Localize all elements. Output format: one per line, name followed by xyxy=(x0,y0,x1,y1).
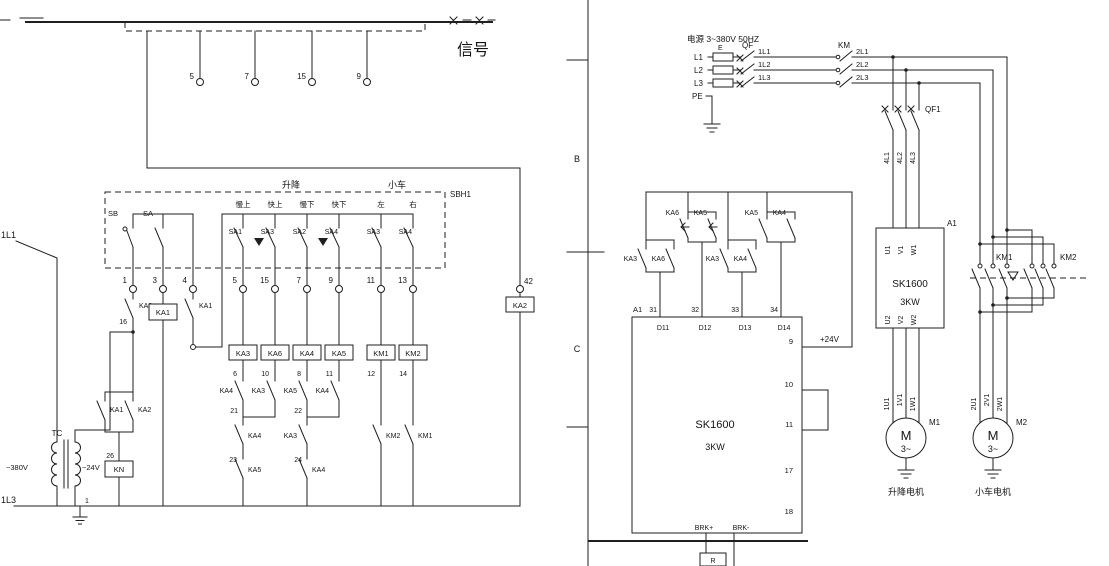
inverter-terminal: U2 xyxy=(885,315,892,324)
contact-pivot xyxy=(1030,264,1034,268)
qf1-label: QF1 xyxy=(925,105,941,114)
motor1-ground xyxy=(898,458,914,478)
terminal-number: 11 xyxy=(785,420,793,429)
motor-letter: M xyxy=(901,428,912,443)
controller-box-section: A1 31 32 33 34 D11 D12 D13 D14 9 10 11 1… xyxy=(632,305,840,566)
brake-resistor-label: R xyxy=(710,558,715,565)
terminal-circle xyxy=(130,286,137,293)
terminal-number: 13 xyxy=(398,276,407,285)
tc-label: TC xyxy=(52,429,63,438)
control-supply-section: 1L1 1L3 TC ~380V ~24V 1 KA2 16 KA1 KA1 K… xyxy=(1,214,534,524)
pe-ground xyxy=(704,96,720,132)
wire-label: 2W1 xyxy=(997,397,1004,412)
column-label: 右 xyxy=(409,199,417,209)
terminal-circle xyxy=(410,286,417,293)
input-terminal: D14 xyxy=(778,325,791,332)
wire-number: 8 xyxy=(297,371,301,378)
wire-number: 16 xyxy=(119,319,127,326)
v24-label: +24V xyxy=(820,335,840,344)
controller-power: 3KW xyxy=(705,442,725,452)
terminal-number: 18 xyxy=(785,507,793,516)
junction-dot xyxy=(891,55,895,59)
junction-dot xyxy=(917,81,921,85)
terminal-number: 9 xyxy=(329,276,334,285)
terminal-number: 42 xyxy=(524,277,533,286)
coil-name: KA6 xyxy=(268,349,282,358)
contact-pivot xyxy=(1052,264,1056,268)
coil-name: KA3 xyxy=(236,349,250,358)
junction-circle xyxy=(191,345,196,350)
km2-top-crossover xyxy=(980,230,1054,264)
secondary-leads xyxy=(75,332,133,506)
column-label: 快上 xyxy=(268,199,283,209)
contact-label: KA4 xyxy=(248,433,261,440)
coil-name: KA2 xyxy=(513,301,527,310)
contact-label: KA4 xyxy=(220,388,233,395)
terminal-number: 9 xyxy=(357,72,362,81)
terminal-circle xyxy=(190,286,197,293)
tc-secondary-winding xyxy=(75,442,81,486)
terminal-number: 7 xyxy=(297,276,302,285)
wire-label: 1W1 xyxy=(910,397,917,412)
km-label: KM xyxy=(838,41,850,50)
sb-actuator xyxy=(123,227,127,231)
motor-phase: 3~ xyxy=(988,444,998,454)
mains-wires xyxy=(708,57,1007,264)
terminal-number: 3 xyxy=(153,276,158,285)
ka1-seal-wire xyxy=(185,214,222,347)
tc-core xyxy=(64,440,68,488)
terminal-number: 4 xyxy=(183,276,188,285)
terminal-number: 7 xyxy=(245,72,250,81)
contact-label: KA2 xyxy=(138,407,151,414)
power-input-section: 电源 3~380V 50HZ L1 L2 L3 PE E QF 1L1 1L2 … xyxy=(687,34,1007,264)
phase-label: L1 xyxy=(694,53,703,62)
ka2-seal-contact-wire xyxy=(125,293,133,393)
brk-plus-label: BRK+ xyxy=(695,525,713,532)
zone-label-b: B xyxy=(574,154,580,164)
km2-bottom-crossover xyxy=(980,288,1054,312)
electrical-schematic: 5 7 15 9 信号 SBH1 升降 小车 慢上 快上 慢下 快下 左 右 S… xyxy=(0,0,1109,566)
wire-number: 21 xyxy=(230,408,238,415)
wire-number: 24 xyxy=(294,457,302,464)
primary-voltage: ~380V xyxy=(6,463,28,472)
km2-contacts xyxy=(1024,269,1054,288)
fuse-box xyxy=(713,79,733,87)
motor2-ground xyxy=(985,458,1001,478)
coil-name: KA1 xyxy=(156,308,170,317)
wire-number: 26 xyxy=(106,453,114,460)
terminal-number: 15 xyxy=(260,276,269,285)
terminal-circle xyxy=(378,286,385,293)
contact-label: KA5 xyxy=(694,210,707,217)
signal-terminal-stubs xyxy=(200,31,367,78)
controller-designator: A1 xyxy=(633,305,642,314)
hoist-motor-section: 1U1 1V1 1W1 M 3~ M1 升降电机 xyxy=(884,328,941,497)
motor-designator: M1 xyxy=(929,418,941,427)
inverter-terminal: U1 xyxy=(885,245,892,254)
signal-dashed-box xyxy=(125,22,425,31)
inverter-power: 3KW xyxy=(900,297,920,307)
column-label: 快下 xyxy=(332,199,347,209)
inverter-terminal: W2 xyxy=(911,315,918,326)
fuse-box xyxy=(713,53,733,61)
contact-label: KA4 xyxy=(312,467,325,474)
wire-label: 1V1 xyxy=(897,394,904,407)
wire-number: 12 xyxy=(367,371,375,378)
contact-label: KA1 xyxy=(110,407,123,414)
inverter-terminal: W1 xyxy=(911,245,918,256)
brk-minus-label: BRK- xyxy=(733,525,750,532)
switch-name: SA4 xyxy=(325,229,338,236)
inverter-designator: A1 xyxy=(947,219,957,228)
coil-name: KM2 xyxy=(405,349,420,358)
wire-label: 2L2 xyxy=(856,60,869,69)
terminal-number: 15 xyxy=(297,72,306,81)
contact-label: KA1 xyxy=(199,303,212,310)
contact-pivot xyxy=(836,55,840,59)
terminal-circle xyxy=(272,286,279,293)
km-contactor-contacts xyxy=(840,51,852,87)
contact-pivot xyxy=(1041,264,1045,268)
junction-dot xyxy=(131,330,135,334)
wire-label: 4L1 xyxy=(884,152,891,164)
wire-number: 31 xyxy=(649,307,657,314)
coil-name: KA4 xyxy=(300,349,314,358)
contact-pivot xyxy=(1005,264,1009,268)
contact-label: KA5 xyxy=(248,467,261,474)
inverter-terminal: V1 xyxy=(898,246,905,255)
sb-label: SB xyxy=(108,209,118,218)
wire-number: 6 xyxy=(233,371,237,378)
km2-label: KM2 xyxy=(1060,253,1077,262)
terminal-number: 10 xyxy=(785,380,793,389)
sa-switch xyxy=(155,214,163,285)
sa-label: SA xyxy=(143,209,153,218)
tc-primary-winding xyxy=(52,442,57,486)
sb-pushbutton xyxy=(127,214,133,285)
phase-label: L2 xyxy=(694,66,703,75)
contact-label: KA6 xyxy=(666,210,679,217)
wire-label: 2L1 xyxy=(856,47,869,56)
terminal-number: 5 xyxy=(190,72,195,81)
terminal-number: 11 xyxy=(367,276,376,285)
terminal-circle xyxy=(517,286,524,293)
terminal-circle xyxy=(309,79,316,86)
contact-pivot xyxy=(836,68,840,72)
contact-pivot xyxy=(836,81,840,85)
relay-coil-section: KA3 KA6 KA4 KA5 KM1 KM2 6 10 8 11 12 14 … xyxy=(220,293,433,507)
contact-arrows xyxy=(681,223,717,231)
phase-label: L3 xyxy=(694,79,703,88)
junction-dot xyxy=(1005,228,1009,232)
contact-label: KA5 xyxy=(745,210,758,217)
km1-triangle xyxy=(1008,272,1018,280)
wire-label: 2L3 xyxy=(856,73,869,82)
coil-name: KN xyxy=(114,465,124,474)
wire-label: 4L2 xyxy=(897,152,904,164)
fuse-box xyxy=(713,66,733,74)
wire-label: 1L3 xyxy=(758,73,771,82)
terminal-number: 1 xyxy=(123,276,128,285)
wire-number: 23 xyxy=(229,457,237,464)
wire-label: 1L2 xyxy=(758,60,771,69)
wire-label: 2U1 xyxy=(971,397,978,410)
terminal-number: 9 xyxy=(789,337,793,346)
feeder-top-label: 1L1 xyxy=(1,230,16,240)
inverter-terminal: V2 xyxy=(898,316,905,325)
terminal-number: 17 xyxy=(785,466,793,475)
switch-name: SA4 xyxy=(399,229,412,236)
group-label-hoist: 升降 xyxy=(282,179,300,190)
motor2-caption: 小车电机 xyxy=(975,486,1011,497)
feeder-bottom-label: 1L3 xyxy=(1,495,16,505)
qf-label: QF xyxy=(742,41,753,50)
terminal-circle xyxy=(364,79,371,86)
motor-letter: M xyxy=(988,428,999,443)
column-label: 左 xyxy=(377,199,385,209)
wire-label: 1L1 xyxy=(758,47,771,56)
linkage-triangles xyxy=(254,238,328,246)
contact-label: KA5 xyxy=(284,388,297,395)
inverter-box xyxy=(876,228,944,328)
terminal-circle xyxy=(336,286,343,293)
top-left-marks xyxy=(0,18,43,20)
contact-label: KA3 xyxy=(624,256,637,263)
coil-name: KM1 xyxy=(373,349,388,358)
terminal-circle xyxy=(160,286,167,293)
input-terminal: D13 xyxy=(739,325,752,332)
contact-label: KA6 xyxy=(652,256,665,263)
column-label: 慢下 xyxy=(300,199,315,209)
terminal-circle xyxy=(252,79,259,86)
wire-number: 10 xyxy=(261,371,269,378)
terminal-number: 5 xyxy=(233,276,238,285)
ground-symbol xyxy=(73,506,87,524)
wire-number: 33 xyxy=(731,307,739,314)
contact-label: KA4 xyxy=(773,210,786,217)
switch-name: SA1 xyxy=(229,229,242,236)
qf1-inverter-feed: QF1 4L1 4L2 4L3 xyxy=(882,55,941,228)
terminal-jumper xyxy=(802,390,828,430)
inverter-power-box: A1 U1 V1 W1 SK1600 3KW U2 V2 W2 xyxy=(876,219,957,328)
km1-label: KM1 xyxy=(996,253,1013,262)
contact-label: KA3 xyxy=(706,256,719,263)
inverter-model: SK1600 xyxy=(892,279,928,290)
contact-pivot xyxy=(991,264,995,268)
wire-number: 14 xyxy=(399,371,407,378)
terminal-circle xyxy=(304,286,311,293)
junction-dot xyxy=(904,68,908,72)
coil-feed-wires xyxy=(243,293,413,346)
signal-label: 信号 xyxy=(457,41,489,59)
master-switch-contacts xyxy=(234,214,413,285)
contact-label: KA4 xyxy=(734,256,747,263)
wire-label: 1U1 xyxy=(884,397,891,410)
phase-label: PE xyxy=(692,92,703,101)
motor-phase: 3~ xyxy=(901,444,911,454)
wire-number: 34 xyxy=(770,307,778,314)
qf-breaker-contacts xyxy=(737,51,754,87)
wire-label: 2V1 xyxy=(984,394,991,407)
wire-number: 22 xyxy=(294,408,302,415)
signal-box-section: 5 7 15 9 信号 xyxy=(0,17,520,285)
trolley-motor-section: 2U1 2V1 2W1 M 3~ M2 小车电机 xyxy=(971,394,1028,497)
switch-name: SA2 xyxy=(293,229,306,236)
input-terminal: D12 xyxy=(699,325,712,332)
group-label-trolley: 小车 xyxy=(388,179,406,190)
contact-label: KA3 xyxy=(284,433,297,440)
wire-number: 1 xyxy=(85,498,89,505)
terminal-e-label: E xyxy=(718,45,723,52)
divider-lines xyxy=(567,0,604,566)
schematic-page: 5 7 15 9 信号 SBH1 升降 小车 慢上 快上 慢下 快下 左 右 S… xyxy=(0,0,1109,566)
wire-number: 11 xyxy=(326,371,333,378)
terminal-circle xyxy=(240,286,247,293)
contact-label: KA3 xyxy=(252,388,265,395)
terminal-circle xyxy=(197,79,204,86)
column-label: 慢上 xyxy=(236,199,251,209)
junction-dot xyxy=(978,242,982,246)
sbh1-panel: SBH1 升降 小车 慢上 快上 慢下 快下 左 右 SB SA SA1 SA3… xyxy=(105,179,471,293)
contact-pivot xyxy=(978,264,982,268)
controller-model: SK1600 xyxy=(695,419,734,431)
wire-number: 32 xyxy=(691,307,699,314)
feeder-wire xyxy=(147,31,520,285)
wire-label: 4L3 xyxy=(910,152,917,164)
sbh1-label: SBH1 xyxy=(450,190,471,199)
motor1-caption: 升降电机 xyxy=(888,486,924,497)
secondary-voltage: ~24V xyxy=(82,463,100,472)
switch-name: SA3 xyxy=(367,229,380,236)
motor-designator: M2 xyxy=(1016,418,1028,427)
junction-dot xyxy=(991,235,995,239)
contact-label: KM1 xyxy=(418,433,433,440)
coil-name: KA5 xyxy=(332,349,346,358)
contact-label: KM2 xyxy=(386,433,401,440)
input-terminal: D11 xyxy=(657,325,669,332)
contact-label: KA4 xyxy=(316,388,329,395)
zone-label-c: C xyxy=(574,344,581,354)
switch-name: SA3 xyxy=(261,229,274,236)
